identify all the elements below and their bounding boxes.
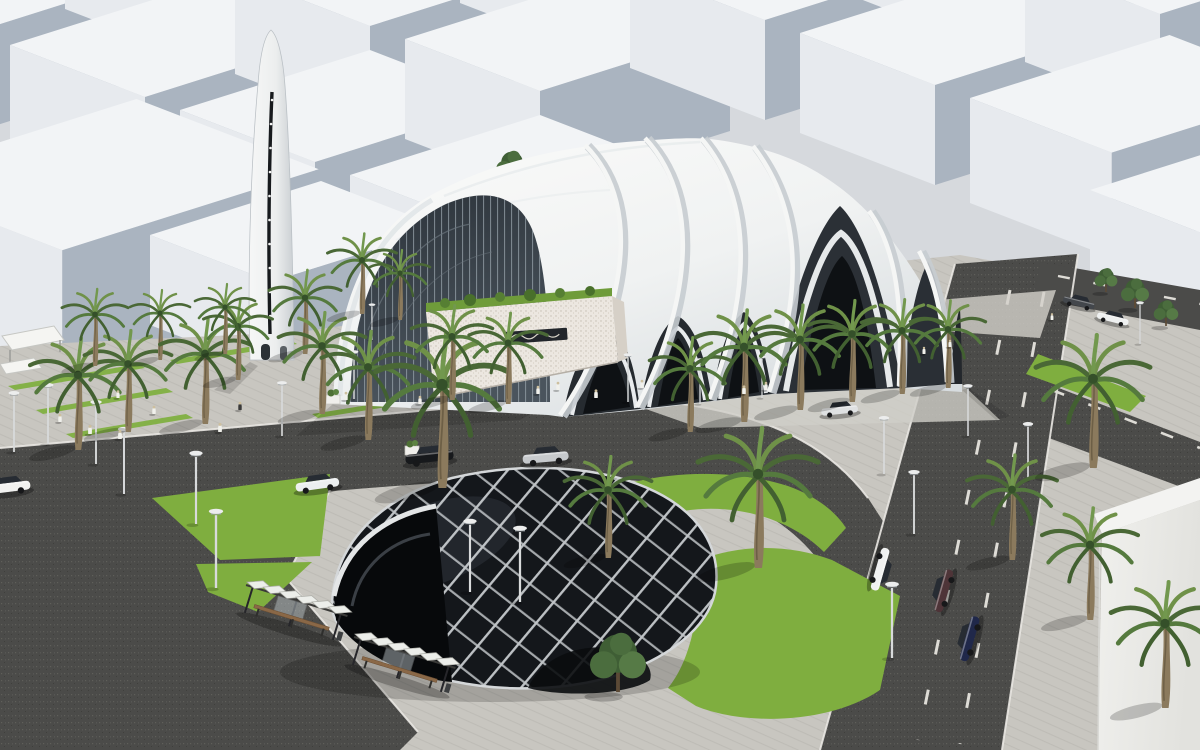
planter: [405, 440, 419, 455]
planter: [326, 389, 340, 404]
architectural-rendering: Aerial 3D architectural rendering of a m…: [0, 0, 1200, 750]
minaret-door: [261, 344, 270, 360]
